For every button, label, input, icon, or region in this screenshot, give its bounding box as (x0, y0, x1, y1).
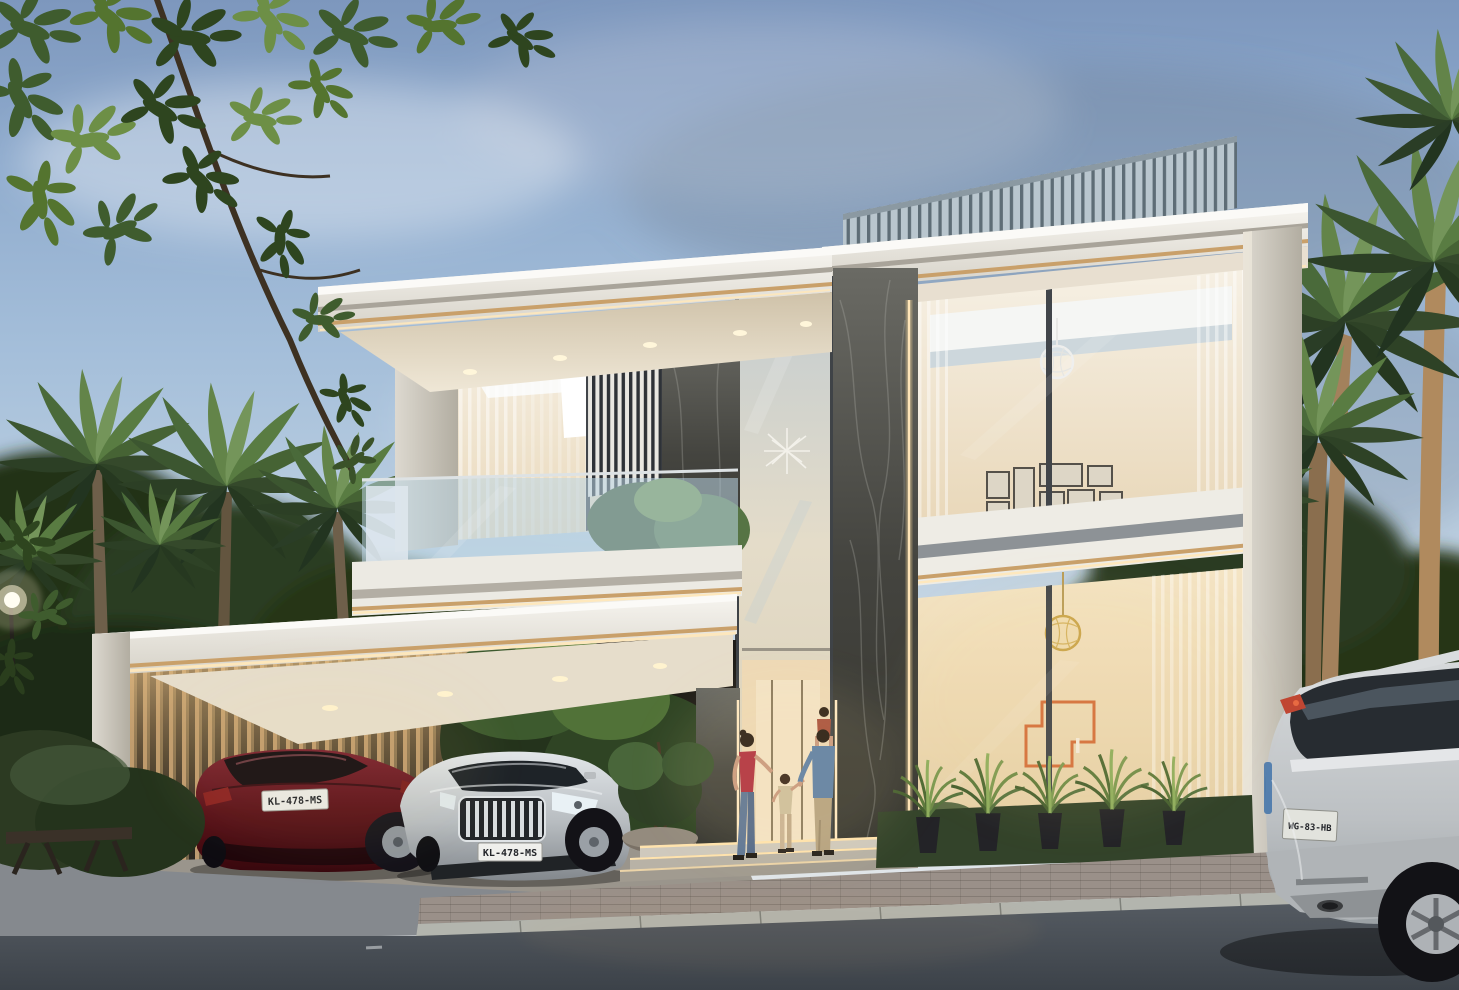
upper-window-right (918, 270, 1243, 518)
silver-sedan-plate: KL-478-MS (478, 843, 542, 861)
svg-text:KL-478-MS: KL-478-MS (483, 848, 537, 859)
villa-rendering: KL-478-MS (0, 0, 1459, 990)
chrome-grille (459, 797, 545, 841)
